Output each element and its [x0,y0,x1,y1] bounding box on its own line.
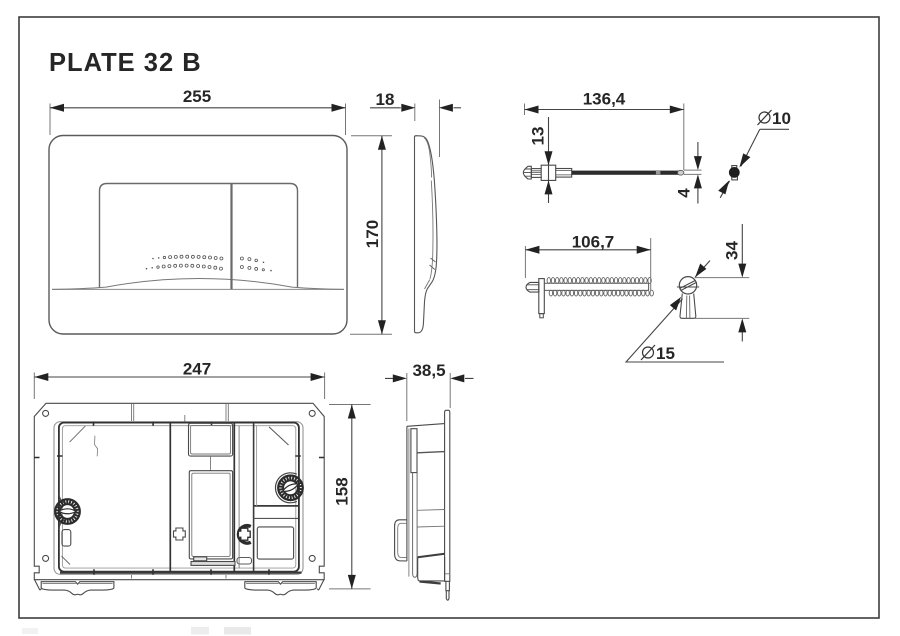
svg-text:34: 34 [723,241,742,260]
svg-text:170: 170 [363,220,382,248]
svg-text:255: 255 [183,87,211,106]
svg-text:10: 10 [772,109,791,128]
svg-text:18: 18 [376,90,395,109]
svg-text:15: 15 [656,344,675,363]
svg-text:247: 247 [183,360,211,379]
svg-text:106,7: 106,7 [572,233,615,252]
svg-text:PLATE 32 B: PLATE 32 B [49,49,202,77]
svg-text:38,5: 38,5 [412,361,445,380]
svg-text:158: 158 [333,477,352,505]
svg-text:4: 4 [675,188,694,198]
svg-text:136,4: 136,4 [583,90,626,109]
svg-text:13: 13 [529,127,548,146]
